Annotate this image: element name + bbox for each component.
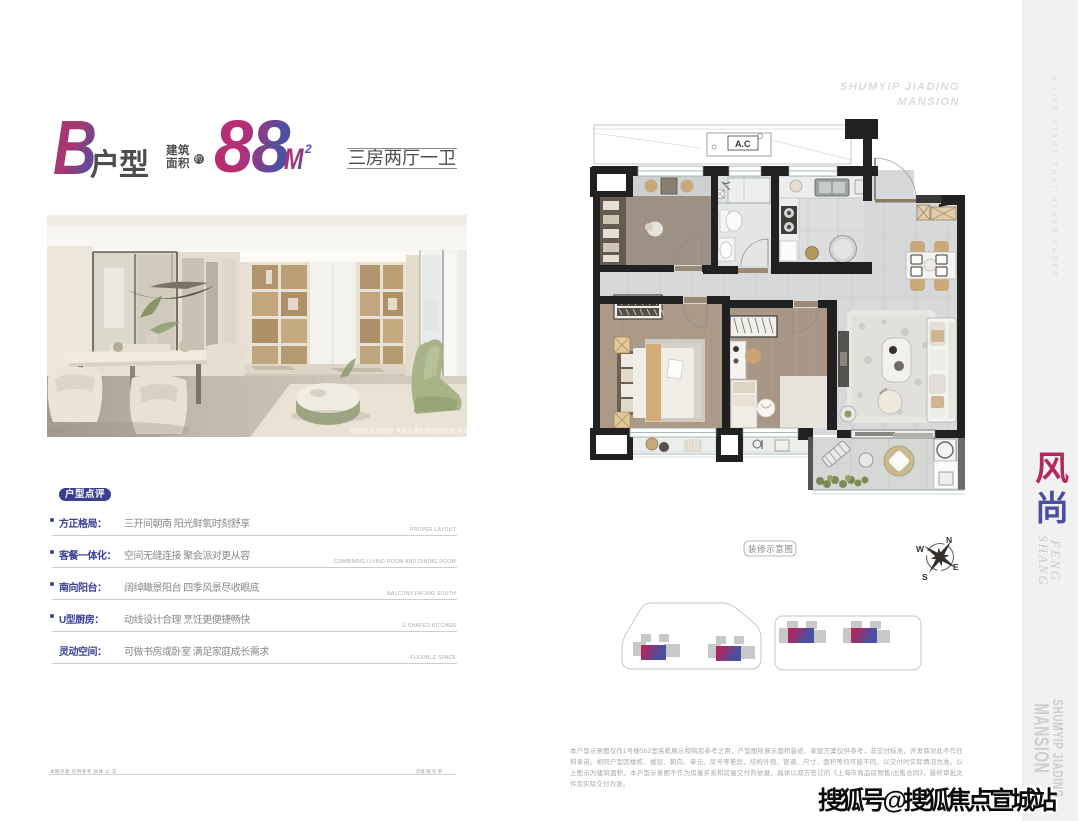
svg-text:装修示意图: 装修示意图 <box>748 544 794 554</box>
svg-text:E: E <box>953 562 959 572</box>
svg-text:键盘树 低饱和度 木色元素材质搭配家具 营造柔和空间气氛: 键盘树 低饱和度 木色元素材质搭配家具 营造柔和空间气氛 <box>350 427 467 435</box>
svg-text:W: W <box>916 544 925 554</box>
svg-text:A.C: A.C <box>735 139 751 149</box>
svg-text:N: N <box>946 535 952 545</box>
